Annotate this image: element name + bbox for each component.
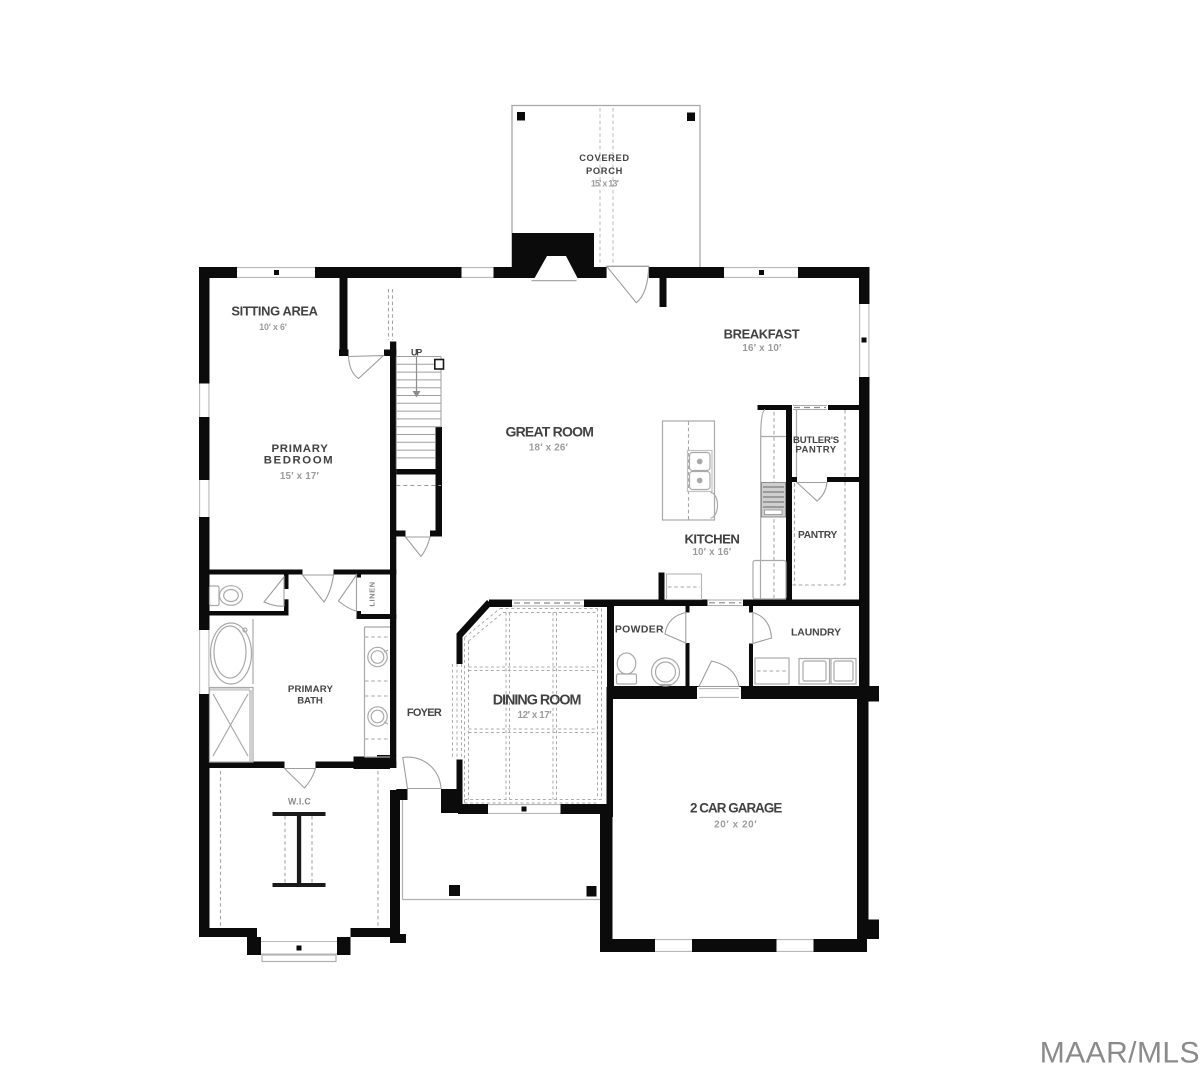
- svg-text:UP: UP: [411, 348, 422, 358]
- svg-text:KITCHEN: KITCHEN: [684, 532, 739, 547]
- svg-text:POWDER: POWDER: [615, 625, 664, 636]
- svg-text:BATH: BATH: [297, 696, 323, 707]
- svg-text:GREAT ROOM: GREAT ROOM: [505, 424, 593, 440]
- svg-text:DINING ROOM: DINING ROOM: [493, 693, 581, 709]
- svg-text:LAUNDRY: LAUNDRY: [791, 627, 841, 638]
- svg-text:LINEN: LINEN: [368, 581, 377, 606]
- svg-text:16′ x 10′: 16′ x 10′: [742, 343, 782, 354]
- svg-text:10′ x 6′: 10′ x 6′: [259, 322, 286, 332]
- svg-text:20′ x 20′: 20′ x 20′: [714, 820, 757, 831]
- svg-text:PRIMARY: PRIMARY: [271, 443, 328, 455]
- svg-text:PANTRY: PANTRY: [798, 530, 837, 541]
- svg-text:2 CAR GARAGE: 2 CAR GARAGE: [690, 801, 782, 816]
- svg-text:FOYER: FOYER: [407, 707, 442, 719]
- svg-text:SITTING AREA: SITTING AREA: [231, 304, 317, 319]
- svg-text:MAAR/MLS: MAAR/MLS: [1040, 1037, 1200, 1070]
- svg-text:COVERED: COVERED: [579, 153, 630, 163]
- svg-text:15′ x 17′: 15′ x 17′: [280, 471, 320, 482]
- svg-text:15′ x 13′: 15′ x 13′: [591, 179, 619, 189]
- svg-text:PANTRY: PANTRY: [795, 445, 836, 456]
- svg-text:PRIMARY: PRIMARY: [288, 684, 334, 695]
- svg-text:BREAKFAST: BREAKFAST: [724, 327, 800, 342]
- svg-text:10′ x 16′: 10′ x 16′: [692, 547, 731, 558]
- svg-text:12′ x 17′: 12′ x 17′: [518, 710, 553, 721]
- svg-text:W.I.C: W.I.C: [288, 797, 311, 807]
- svg-text:18′ x 26′: 18′ x 26′: [529, 443, 569, 454]
- svg-text:BEDROOM: BEDROOM: [264, 455, 334, 467]
- svg-text:PORCH: PORCH: [586, 166, 623, 176]
